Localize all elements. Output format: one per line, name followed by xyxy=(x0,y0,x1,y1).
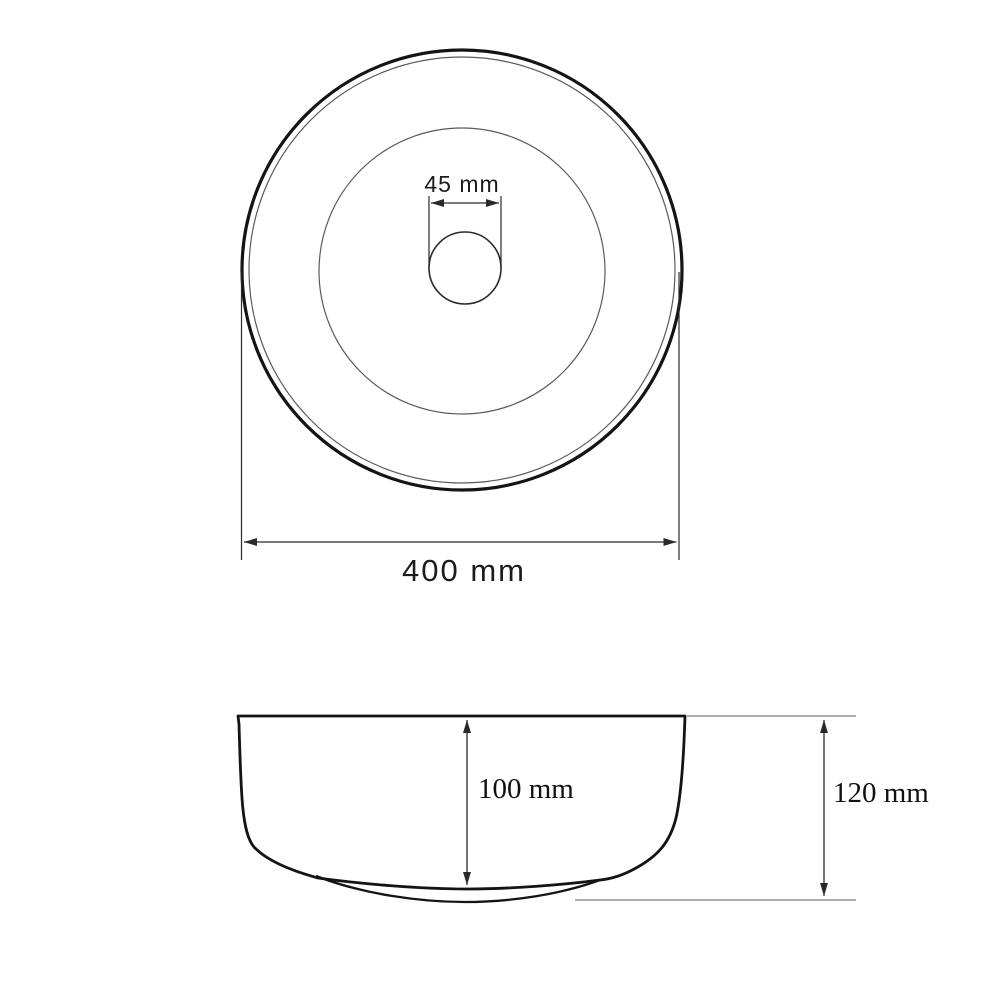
diameter-dimension-label: 400 mm xyxy=(402,553,526,588)
inner-rim-circle xyxy=(249,57,675,483)
basin-drawing-svg: 45 mm 400 mm 100 mm 120 mm xyxy=(0,0,1000,1000)
total-height-dimension-label: 120 mm xyxy=(833,777,929,809)
side-view: 100 mm 120 mm xyxy=(238,716,929,902)
depth-dimension-label: 100 mm xyxy=(478,773,574,805)
outer-rim-circle xyxy=(242,50,682,490)
drain-circle xyxy=(429,232,501,304)
drain-dimension-label: 45 mm xyxy=(424,171,499,197)
technical-drawing-canvas: 45 mm 400 mm 100 mm 120 mm xyxy=(0,0,1000,1000)
top-view: 45 mm 400 mm xyxy=(242,50,683,588)
bowl-profile-outline xyxy=(238,716,685,889)
